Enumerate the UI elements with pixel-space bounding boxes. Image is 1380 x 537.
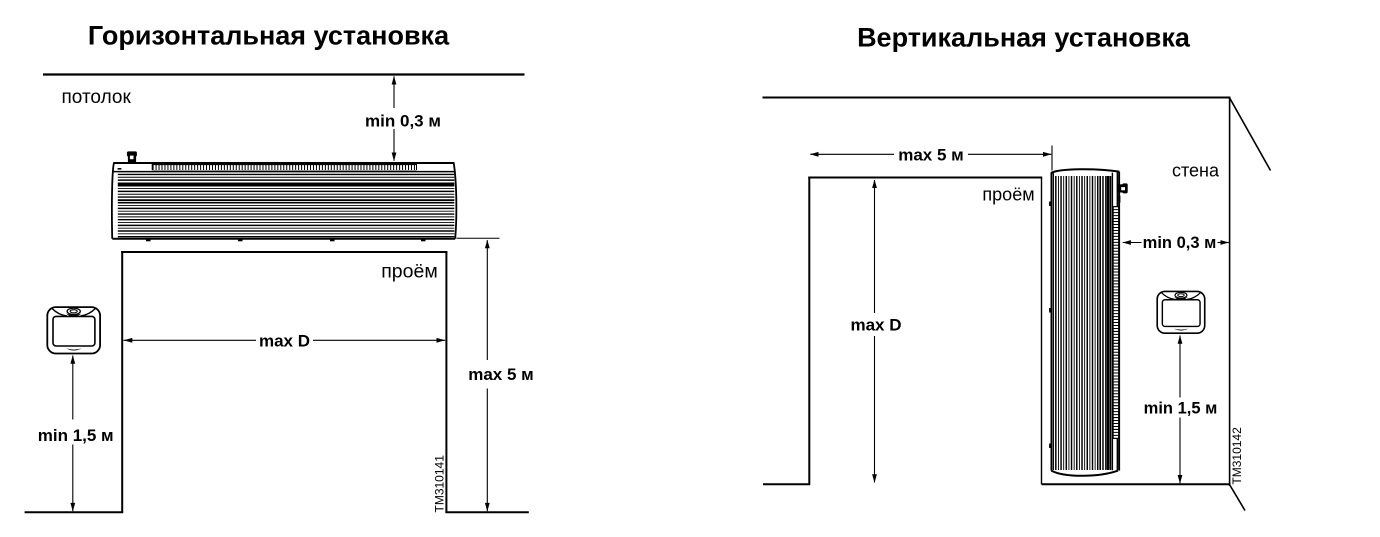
svg-text:min 1,5 м: min 1,5 м <box>1144 400 1218 418</box>
svg-text:Вертикальная установка: Вертикальная установка <box>857 23 1191 53</box>
svg-text:стена: стена <box>1172 161 1220 181</box>
svg-text:TM310141: TM310141 <box>432 455 446 513</box>
svg-text:max D: max D <box>850 316 901 335</box>
svg-text:проём: проём <box>982 184 1034 204</box>
svg-text:max 5 м: max 5 м <box>898 145 964 164</box>
svg-text:max 5 м: max 5 м <box>468 365 534 384</box>
svg-text:min 0,3 м: min 0,3 м <box>365 111 441 130</box>
svg-text:min 0,3 м: min 0,3 м <box>1143 234 1217 252</box>
svg-text:TM310142: TM310142 <box>1230 427 1244 485</box>
svg-text:проём: проём <box>381 261 438 283</box>
svg-text:потолок: потолок <box>62 87 132 108</box>
svg-text:min 1,5 м: min 1,5 м <box>38 426 114 445</box>
svg-text:Горизонтальная установка: Горизонтальная установка <box>88 21 450 51</box>
svg-text:max D: max D <box>259 331 310 350</box>
